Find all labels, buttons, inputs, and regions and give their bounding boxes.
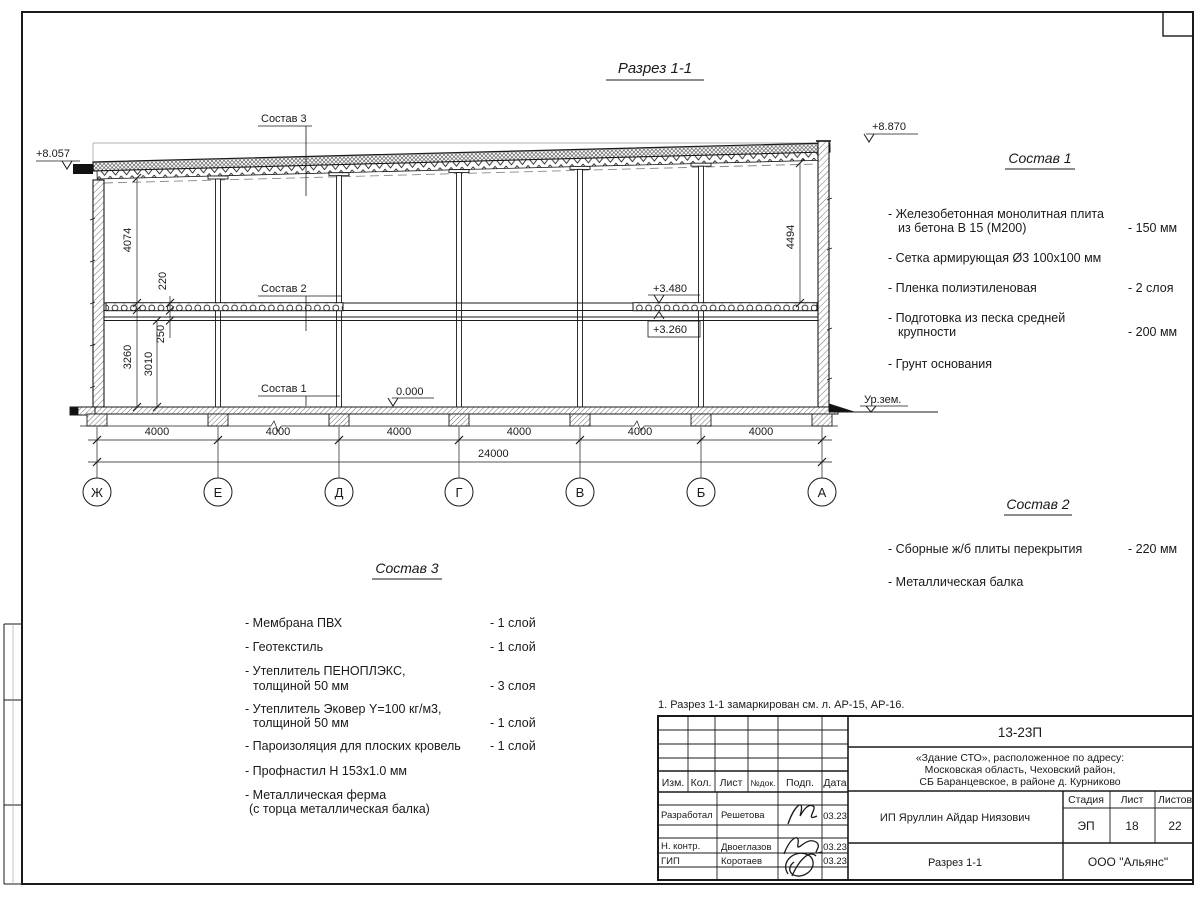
- sostav2-list: Состав 2 - Сборные ж/б плиты перекрытия …: [888, 496, 1177, 589]
- sostav3-item: толщиной 50 мм: [253, 679, 349, 693]
- col-izm: Изм.: [662, 777, 685, 789]
- row-role: Разработал: [661, 810, 713, 821]
- signature-reshetova: [788, 805, 817, 824]
- row-date: 03.23: [823, 856, 847, 867]
- note-text: 1. Разрез 1-1 замаркирован см. л. АР-15,…: [658, 699, 904, 711]
- sostav3-item: - Геотекстиль: [245, 640, 323, 654]
- signatures: [784, 805, 822, 876]
- level-ground: Ур.зем.: [860, 394, 908, 412]
- axis-d: Д: [335, 485, 344, 500]
- sostav1-item: - Пленка полиэтиленовая: [888, 281, 1037, 295]
- col-data: Дата: [823, 777, 846, 789]
- level-roof-right-text: +8.870: [872, 121, 906, 133]
- col-kol: Кол.: [691, 777, 712, 789]
- project-line1: «Здание СТО», расположенное по адресу:: [916, 752, 1124, 764]
- sostav1-title: Состав 1: [1008, 150, 1071, 166]
- sostav1-item: - Подготовка из песка средней: [888, 311, 1065, 325]
- bay-dim-5: 4000: [628, 426, 652, 438]
- client-name: ИП Яруллин Айдар Ниязович: [880, 812, 1030, 824]
- floor-band: [80, 407, 838, 414]
- sostav1-item: крупности: [898, 325, 956, 339]
- axis-extension-lines: [97, 427, 822, 478]
- row-role: Н. контр.: [661, 841, 700, 852]
- sostav1-list: Состав 1 - Железобетонная монолитная пли…: [888, 150, 1177, 371]
- dim-250: 250: [155, 325, 167, 343]
- section-title: Разрез 1-1: [606, 60, 704, 80]
- row-name: Двоеглазов: [721, 842, 772, 853]
- total-dim: 24000: [478, 448, 509, 460]
- ground-floor: [70, 404, 938, 431]
- callout-sostav3: Состав 3: [258, 113, 312, 196]
- horizontal-dimensions: 4000 4000 4000 4000 4000 4000 24000: [88, 426, 832, 478]
- sostav3-list: Состав 3 - Мембрана ПВХ - 1 слой - Геоте…: [245, 560, 536, 816]
- sostav3-item: - Утеплитель ПЕНОПЛЭКС,: [245, 664, 405, 678]
- row-name: Решетова: [721, 810, 765, 821]
- sostav3-item: (с торца металлическая балка): [249, 802, 430, 816]
- level-slab-bottom: +3.260: [648, 312, 700, 338]
- level-roof-left-text: +8.057: [36, 148, 70, 160]
- stage-label: Стадия: [1068, 794, 1104, 806]
- sheet-title: Разрез 1-1: [928, 857, 982, 869]
- sostav1-item: - Сетка армирующая Ø3 100х100 мм: [888, 251, 1101, 265]
- level-floor-text: 0.000: [396, 386, 424, 398]
- building-section: [70, 141, 938, 431]
- sostav3-item: - Мембрана ПВХ: [245, 616, 343, 630]
- signature-korotaev: [786, 853, 816, 876]
- roof-gutter: [73, 164, 93, 174]
- left-wall: [93, 180, 104, 407]
- callout-sostav2-text: Состав 2: [261, 283, 307, 295]
- project-line2: Московская область, Чеховский район,: [925, 764, 1116, 776]
- axis-zh: Ж: [91, 485, 103, 500]
- callout-sostav1-text: Состав 1: [261, 383, 307, 395]
- dim-3010: 3010: [143, 352, 155, 376]
- col-ndok: №док.: [751, 778, 776, 788]
- sheet-value: 18: [1125, 819, 1139, 833]
- left-filing-strip: [4, 624, 22, 884]
- sostav1-value: - 150 мм: [1128, 221, 1177, 235]
- bay-dim-6: 4000: [749, 426, 773, 438]
- sostav2-item: - Металлическая балка: [888, 575, 1023, 589]
- hollow-core-slab-left: [106, 303, 343, 311]
- sostav3-item: - Металлическая ферма: [245, 788, 386, 802]
- sostav3-item: - Пароизоляция для плоских кровель: [245, 739, 461, 753]
- roof-band: [73, 143, 830, 183]
- dim-4074: 4074: [122, 228, 134, 252]
- level-slab-top-text: +3.480: [653, 283, 687, 295]
- stage-value: ЭП: [1077, 819, 1094, 833]
- row-role: ГИП: [661, 856, 680, 867]
- drawing-sheet: Разрез 1-1: [0, 0, 1200, 900]
- sostav2-value: - 220 мм: [1128, 542, 1177, 556]
- top-right-stamp-box: [1163, 12, 1193, 36]
- row-name: Коротаев: [721, 856, 762, 867]
- row-date: 03.23: [823, 811, 847, 822]
- sheets-label: Листов: [1158, 794, 1193, 806]
- axis-a: А: [818, 485, 827, 500]
- dim-220: 220: [157, 272, 169, 290]
- sostav3-item: толщиной 50 мм: [253, 716, 349, 730]
- sostav2-item: - Сборные ж/б плиты перекрытия: [888, 542, 1082, 556]
- sostav3-title: Состав 3: [375, 560, 438, 576]
- level-slab-top: +3.480: [648, 283, 700, 303]
- sostav1-item: - Железобетонная монолитная плита: [888, 207, 1104, 221]
- right-wall: [818, 141, 829, 407]
- sostav1-value: - 200 мм: [1128, 325, 1177, 339]
- axis-v: В: [576, 485, 585, 500]
- company-name: ООО "Альянс": [1088, 855, 1168, 869]
- signature-dvoeglazov: [784, 838, 822, 854]
- foundations: [87, 414, 832, 426]
- dimension-ticks-bottom: [93, 436, 826, 466]
- sheet-label: Лист: [1121, 794, 1144, 806]
- bay-dim-3: 4000: [387, 426, 411, 438]
- dim-4494: 4494: [785, 225, 797, 249]
- sostav3-item: - Утеплитель Эковер Y=100 кг/м3,: [245, 702, 441, 716]
- callout-sostav3-text: Состав 3: [261, 113, 307, 125]
- sostav3-value: - 3 слоя: [490, 679, 535, 693]
- bay-dim-1: 4000: [145, 426, 169, 438]
- level-floor: 0.000: [388, 386, 434, 406]
- section-drawing-svg: Разрез 1-1: [0, 0, 1200, 900]
- col-list: Лист: [720, 777, 743, 789]
- sostav1-value: - 2 слоя: [1128, 281, 1173, 295]
- axis-markers: Ж Е Д Г В Б А: [83, 478, 836, 506]
- project-line3: СБ Баранцевское, в районе д. Курниково: [919, 776, 1120, 788]
- right-ramp: [829, 404, 854, 412]
- sostav3-value: - 1 слой: [490, 716, 536, 730]
- row-date: 03.23: [823, 842, 847, 853]
- level-roof-right: +8.870: [864, 121, 918, 142]
- sostav3-value: - 1 слой: [490, 739, 536, 753]
- axis-b: Б: [697, 485, 706, 500]
- sheets-value: 22: [1168, 819, 1182, 833]
- callout-sostav1: Состав 1: [258, 383, 340, 406]
- hollow-core-slab-right: [633, 303, 817, 311]
- axis-g: Г: [455, 485, 462, 500]
- section-title-text: Разрез 1-1: [618, 60, 692, 77]
- title-block: Изм. Кол. Лист №док. Подп. Дата Разработ…: [658, 716, 1193, 880]
- level-slab-bottom-text: +3.260: [653, 324, 687, 336]
- level-ground-text: Ур.зем.: [864, 394, 901, 406]
- sostav2-title: Состав 2: [1006, 496, 1069, 512]
- sostav3-value: - 1 слой: [490, 616, 536, 630]
- axis-e: Е: [214, 485, 223, 500]
- dim-3260: 3260: [122, 345, 134, 369]
- bay-dim-2: 4000: [266, 426, 290, 438]
- sostav1-item: из бетона В 15 (М200): [898, 221, 1026, 235]
- doc-number: 13-23П: [998, 725, 1042, 740]
- sostav3-item: - Профнастил Н 153х1.0 мм: [245, 764, 407, 778]
- col-podp: Подп.: [786, 777, 814, 789]
- sostav3-value: - 1 слой: [490, 640, 536, 654]
- bay-dim-4: 4000: [507, 426, 531, 438]
- sostav1-item: - Грунт основания: [888, 357, 992, 371]
